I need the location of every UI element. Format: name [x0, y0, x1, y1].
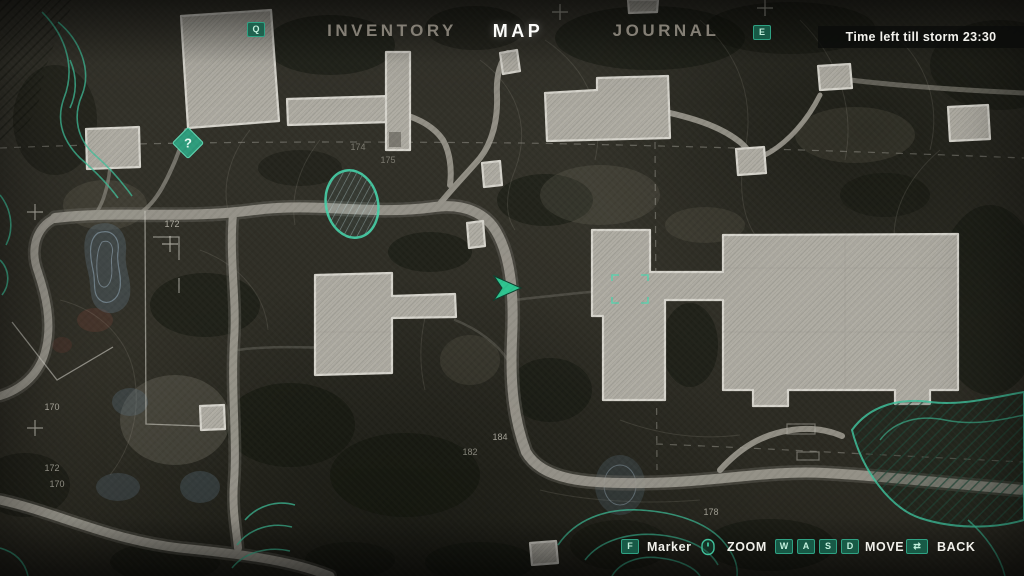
elevation-label: 178 [703, 507, 718, 517]
building-footprint [315, 273, 456, 375]
elevation-label: 170 [49, 479, 64, 489]
marker-hint-label: Marker [647, 539, 692, 555]
building-footprint [545, 76, 670, 141]
map-canvas[interactable]: 172 174 175 170 172 170 184 182 178 ? [0, 0, 1024, 576]
elevation-label: 182 [462, 447, 477, 457]
next-tab-key-badge: E [753, 25, 771, 40]
elevation-label: 172 [44, 463, 59, 473]
building-footprint [818, 64, 852, 90]
move-hint-label: MOVE [865, 539, 904, 555]
bottom-hints-bar: F Marker ZOOM W A S D MOVE ⇄ BACK [0, 538, 1024, 560]
move-key-d-badge: D [841, 539, 859, 554]
elevation-label: 175 [380, 155, 395, 165]
building-footprint [200, 405, 225, 430]
back-key-icon: ⇄ [906, 539, 928, 554]
mouse-wheel-icon [700, 538, 716, 556]
tab-map[interactable]: MAP [493, 21, 544, 42]
building-footprint [482, 161, 502, 187]
building-footprint [736, 147, 766, 175]
building-footprint [467, 221, 485, 248]
question-marker-glyph: ? [184, 136, 192, 151]
map-screen: 172 174 175 170 172 170 184 182 178 ? [0, 0, 1024, 576]
back-hint-label[interactable]: BACK [937, 539, 976, 555]
storm-timer: Time left till storm 23:30 [818, 26, 1024, 48]
elevation-label: 184 [492, 432, 507, 442]
building-footprint [592, 230, 958, 406]
building-footprint [86, 127, 140, 169]
move-key-s-badge: S [819, 539, 837, 554]
tab-inventory[interactable]: INVENTORY [327, 21, 457, 41]
top-bar: Q INVENTORY MAP JOURNAL E Time left till… [0, 0, 1024, 60]
tab-journal[interactable]: JOURNAL [613, 21, 720, 41]
prev-tab-key-badge: Q [247, 22, 265, 37]
building-footprint [948, 105, 990, 141]
elevation-label: 172 [164, 219, 179, 229]
elevation-label: 174 [350, 142, 365, 152]
move-key-w-badge: W [775, 539, 793, 554]
zoom-hint-label: ZOOM [727, 539, 767, 555]
move-key-a-badge: A [797, 539, 815, 554]
building-footprint [287, 96, 391, 125]
elevation-label: 170 [44, 402, 59, 412]
restricted-zone-area [852, 392, 1024, 527]
marker-key-badge: F [621, 539, 639, 554]
